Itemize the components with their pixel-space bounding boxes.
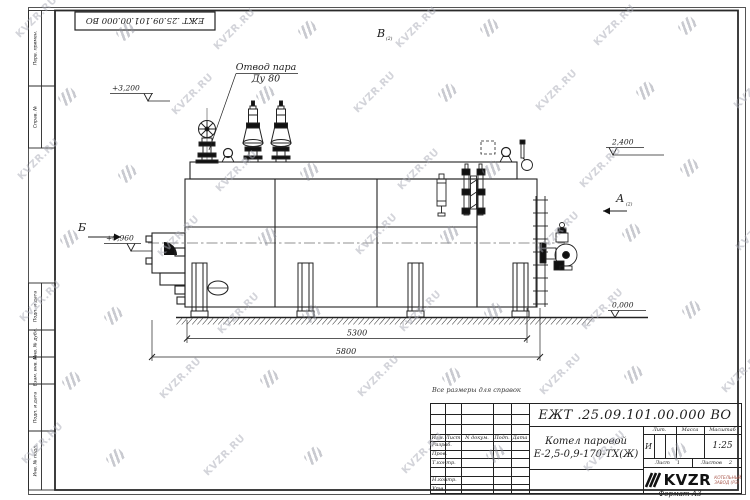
format-label: Формат А3 (600, 490, 750, 498)
view-label-v-top: В (2) (376, 27, 393, 42)
doc-number-stamp-text: ЕЖТ .25.09.101.00.000 ВО (86, 15, 205, 25)
row-prov: Пров. (432, 450, 462, 459)
col-ndokum: N докум. (461, 434, 493, 441)
massa-header: Масса (676, 426, 704, 434)
water-level-gauge (462, 164, 485, 215)
ground-hatch (177, 318, 593, 324)
svg-text:А: А (615, 192, 624, 205)
hatch-opening (481, 141, 495, 154)
view-label-a-right: А (2) (603, 192, 633, 215)
svg-text:2,400: 2,400 (611, 138, 634, 147)
lifting-eye (222, 149, 234, 163)
margin-label: Инв. № подл. (33, 445, 39, 477)
masshtab-header: Масштаб (704, 426, 741, 434)
margin-column: Перв. примен. Справ. № Подп. и дата Инв.… (29, 11, 56, 491)
margin-label: Инв. № дубл. (33, 328, 39, 359)
safety-valve (271, 101, 291, 162)
support-leg (512, 263, 529, 317)
margin-label: Справ. № (33, 106, 39, 129)
lit-header: Лит. (643, 426, 676, 434)
list-value: 1 (677, 460, 680, 466)
svg-text:+3,200: +3,200 (112, 84, 140, 93)
row-blank (432, 467, 462, 476)
margin-label: Подп. и дата (33, 392, 39, 423)
support-leg (407, 263, 424, 317)
col-data: Дата (511, 434, 529, 441)
sampler-cylinder (437, 174, 446, 216)
dimension-5300: 5300 (184, 308, 530, 343)
svg-text:(2): (2) (386, 35, 393, 42)
hook-ring (520, 140, 533, 171)
elevation-mark-top: +3,200 (110, 84, 170, 102)
margin-label: Перв. примен. (33, 31, 39, 66)
svg-text:+0,960: +0,960 (106, 234, 134, 243)
view-label-b-left: Б (77, 221, 121, 241)
margin-label: Взам. инв. № (33, 355, 39, 386)
drawing-sheet: Перв. примен. Справ. № Подп. и дата Инв.… (0, 0, 750, 500)
reference-note: Все размеры для справок (432, 386, 521, 394)
kvzr-spring-icon (643, 472, 661, 488)
product-name-line1: Котел паровой (545, 435, 627, 448)
svg-text:Отвод пара: Отвод пара (236, 62, 297, 73)
svg-text:5800: 5800 (336, 347, 356, 356)
lifting-eye (500, 148, 512, 163)
steam-outlet-valve (196, 108, 218, 163)
view-arrow-left-icon (603, 208, 610, 215)
blower-unit (540, 223, 577, 271)
masshtab-value: 1:25 (704, 434, 741, 458)
svg-text:0,000: 0,000 (612, 301, 634, 310)
support-leg (297, 263, 314, 317)
title-doc-number: ЕЖТ .25.09.101.00.000 ВО (529, 404, 741, 426)
boiler-body (146, 101, 648, 325)
svg-text:Ду 80: Ду 80 (251, 74, 280, 85)
list-cell: Лист 1 (643, 458, 692, 467)
logo-text: KVZR (664, 471, 712, 489)
svg-text:5300: 5300 (347, 329, 367, 338)
list-label: Лист (655, 460, 670, 466)
logo-subtitle-line2: ЗАВОД (РЭ) (714, 480, 741, 485)
doc-number-stamp: ЕЖТ .25.09.101.00.000 ВО (75, 12, 215, 30)
handhole (208, 281, 228, 295)
support-leg (191, 263, 208, 317)
listov-label: Листов (701, 460, 722, 466)
listov-value: 2 (729, 460, 732, 466)
safety-valve (243, 101, 263, 162)
title-block: ЕЖТ .25.09.101.00.000 ВО Котел паровой Е… (430, 403, 742, 494)
svg-text:Б: Б (77, 221, 86, 234)
listov-cell: Листов 2 (692, 458, 741, 467)
row-razrab: Разраб. (432, 441, 462, 450)
row-nkontr: Н.контр. (432, 476, 462, 485)
title-product-name: Котел паровой Е-2,5-0,9-170-ТХ(Ж) (529, 426, 643, 469)
col-list: Лист (445, 434, 461, 441)
lit-value: И (643, 434, 654, 458)
margin-label: Подп. и дата (33, 291, 39, 322)
svg-text:(2): (2) (626, 201, 633, 208)
elevation-mark-front: +0,960 (104, 234, 152, 252)
row-utv: Утв. (432, 484, 462, 493)
elevation-mark-zero: 0,000 (608, 301, 646, 318)
col-izm: Изм. (431, 434, 445, 441)
row-tkontr: Т.контр. (432, 458, 462, 467)
col-podp: Подп. (493, 434, 511, 441)
elevation-mark-right: 2,400 (606, 138, 664, 156)
front-burner-box (146, 233, 185, 285)
svg-text:В: В (376, 27, 385, 40)
product-name-line2: Е-2,5-0,9-170-ТХ(Ж) (534, 448, 639, 461)
dimensions-annotations: 5300 5800 +3,200 2,400 (77, 27, 664, 361)
